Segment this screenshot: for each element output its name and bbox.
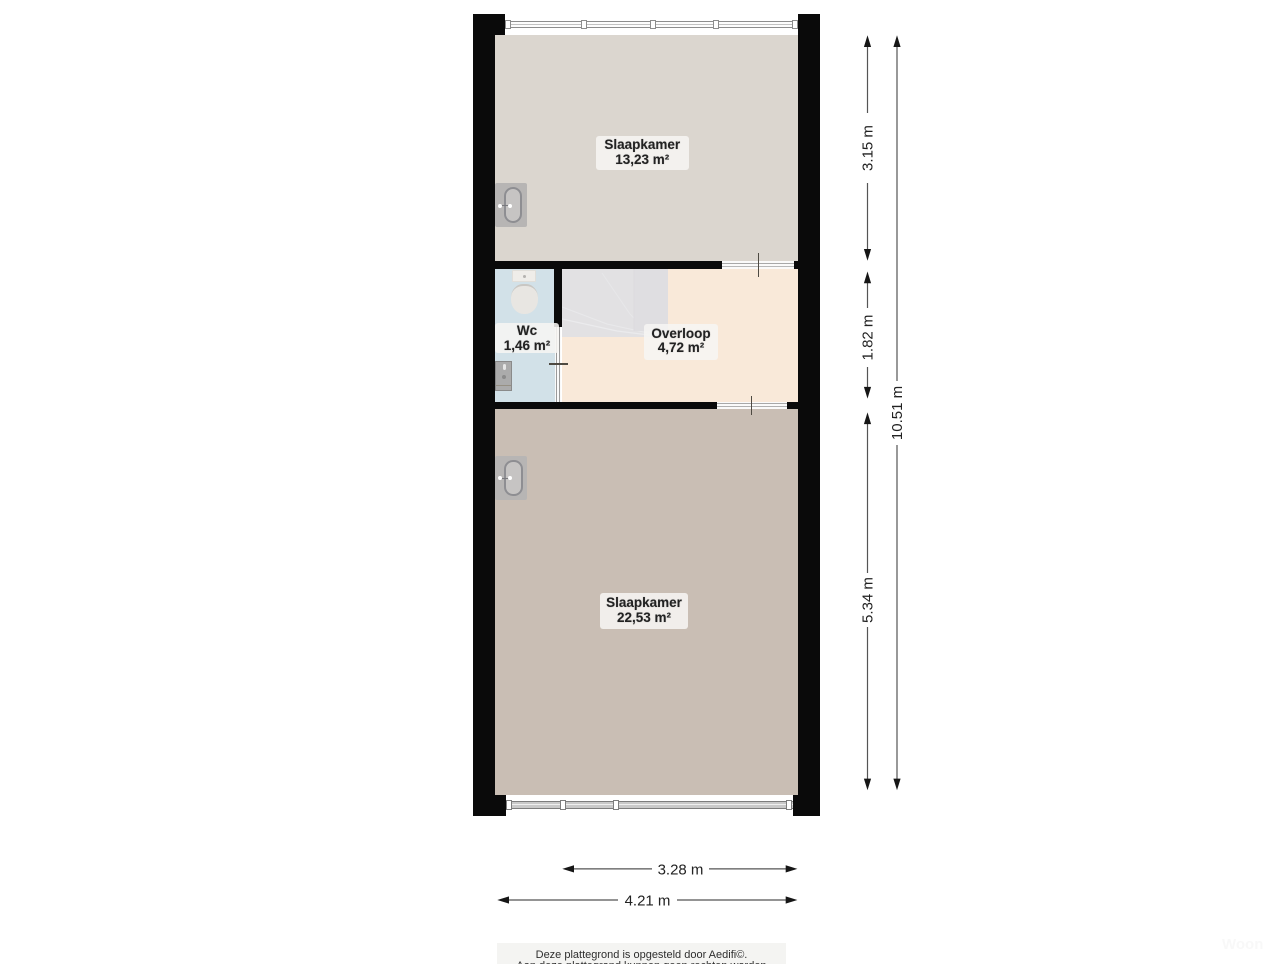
svg-text:4.21 m: 4.21 m — [625, 893, 671, 910]
svg-text:1.82 m: 1.82 m — [860, 315, 877, 361]
svg-text:3.15 m: 3.15 m — [860, 125, 877, 171]
svg-text:5.34 m: 5.34 m — [860, 577, 877, 623]
svg-text:3.28 m: 3.28 m — [658, 862, 704, 879]
svg-text:10.51 m: 10.51 m — [889, 386, 906, 440]
